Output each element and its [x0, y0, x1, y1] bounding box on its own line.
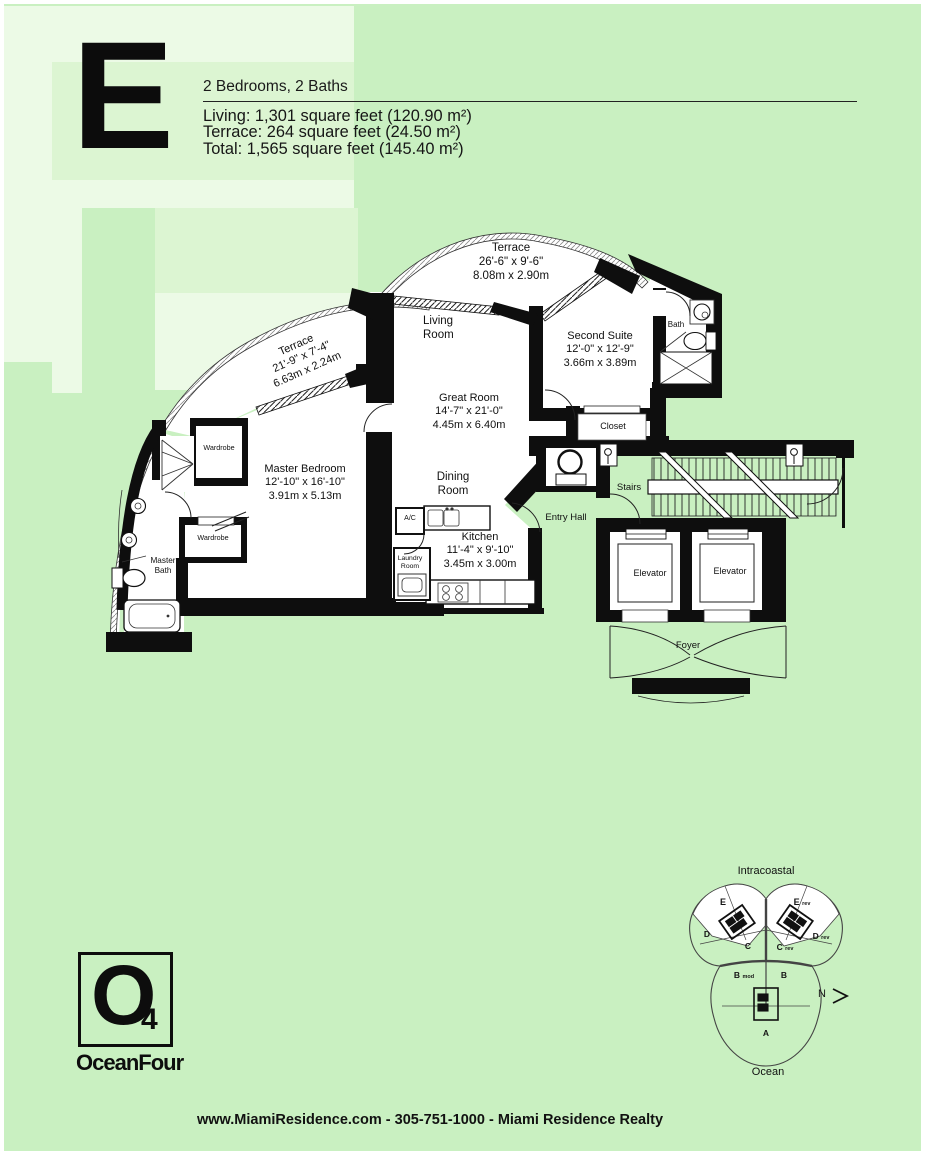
- room-label-laundry-room: Laundry Room: [398, 555, 423, 572]
- keyplan-north-label: N: [818, 988, 826, 1000]
- ocean-four-logo: O 4: [78, 952, 173, 1047]
- room-label-wardrobe-upper: Wardrobe: [203, 444, 234, 453]
- room-label-kitchen: Kitchen 11'-4" x 9'-10" 3.45m x 3.00m: [444, 531, 517, 571]
- logo-name: OceanFour: [76, 1050, 183, 1076]
- room-label-wardrobe-lower: Wardrobe: [197, 534, 228, 543]
- keyplan-label-ocean: Ocean: [752, 1066, 784, 1079]
- keyplan-unit-c-rev: C rev: [777, 942, 794, 952]
- footer-contact-line: www.MiamiResidence.com - 305-751-1000 - …: [0, 1112, 860, 1128]
- keyplan-label-intracoastal: Intracoastal: [738, 865, 795, 878]
- room-label-closet: Closet: [600, 421, 626, 432]
- room-label-dining-room: Dining Room: [437, 470, 470, 498]
- room-label-elevator-right: Elevator: [713, 566, 746, 577]
- logo-4-glyph: 4: [141, 1003, 158, 1037]
- room-label-great-room: Great Room 14'-7" x 21'-0" 4.45m x 6.40m: [433, 392, 506, 432]
- keyplan-unit-b: B: [781, 970, 787, 980]
- room-label-master-bedroom: Master Bedroom 12'-10" x 16'-10" 3.91m x…: [264, 463, 345, 503]
- keyplan-unit-d-rev: D rev: [813, 931, 830, 941]
- room-label-living-room: Living Room: [423, 314, 454, 342]
- site-keyplan: [690, 884, 847, 1066]
- room-label-bath: Bath: [668, 320, 684, 330]
- keyplan-unit-e-rev: E rev: [794, 897, 811, 907]
- keyplan-unit-a: A: [763, 1028, 769, 1038]
- room-label-ac: A/C: [404, 515, 416, 524]
- keyplan-unit-d: D: [704, 929, 710, 939]
- room-label-stairs: Stairs: [617, 482, 641, 494]
- keyplan-unit-b-mod: B mod: [734, 970, 754, 980]
- keyplan-unit-e: E: [720, 897, 726, 907]
- room-label-entry-hall: Entry Hall: [545, 512, 586, 524]
- room-label-second-suite: Second Suite 12'-0" x 12'-9" 3.66m x 3.8…: [564, 330, 637, 370]
- room-label-foyer: Foyer: [676, 640, 700, 652]
- brochure-page: E 2 Bedrooms, 2 Baths Living: 1,301 squa…: [0, 0, 925, 1155]
- room-label-master-bath: Master Bath: [150, 556, 175, 576]
- keyplan-unit-c: C: [745, 941, 751, 951]
- room-label-elevator-left: Elevator: [633, 568, 666, 579]
- room-label-terrace-top: Terrace 26'-6" x 9'-6" 8.08m x 2.90m: [473, 241, 549, 283]
- north-arrow-icon: [833, 989, 847, 1003]
